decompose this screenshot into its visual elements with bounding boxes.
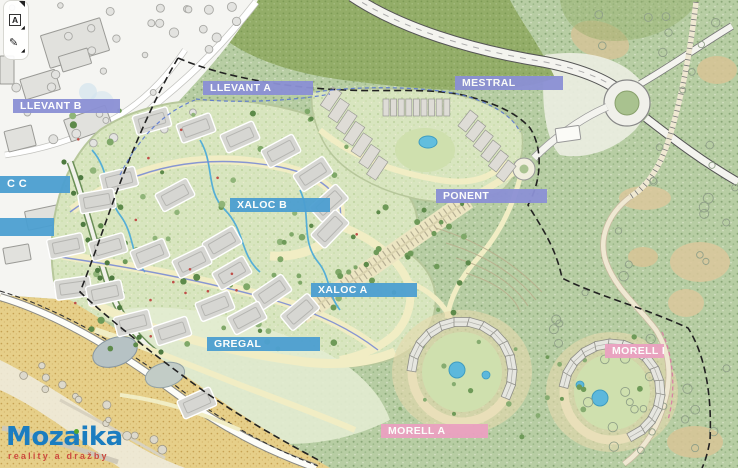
masterplan-image: A ◢ ✎ ◢ LLEVANT A LLEVANT B MESTRAL PONE… xyxy=(0,0,738,468)
zone-label-blank xyxy=(0,218,54,236)
zone-label-morell-b: MORELL B xyxy=(605,344,664,358)
zone-label-partial: C C xyxy=(0,176,70,193)
annotation-toolbar: A ◢ ✎ ◢ xyxy=(3,0,29,60)
text-annotation-icon[interactable]: A xyxy=(9,14,21,26)
logo-i-dot xyxy=(74,429,79,434)
brand-name: Mozaika xyxy=(6,425,156,450)
mestral-garden xyxy=(395,128,455,172)
resize-arrow-icon: ◢ xyxy=(21,26,25,31)
draw-annotation-icon[interactable]: ✎ xyxy=(9,37,18,49)
zone-label-morell-a: MORELL A xyxy=(381,424,488,438)
site-plan-map xyxy=(0,0,738,468)
zone-label-ponent: PONENT xyxy=(436,189,547,203)
zone-label-xaloc-a: XALOC A xyxy=(311,283,417,297)
zone-label-llevant-a: LLEVANT A xyxy=(203,81,313,95)
zone-label-mestral: MESTRAL xyxy=(455,76,563,90)
brand-logo: Mozaika reality a dražby xyxy=(6,425,156,461)
marker-icon[interactable] xyxy=(19,1,25,7)
mestral-pool xyxy=(419,136,437,148)
zone-label-llevant-b: LLEVANT B xyxy=(13,99,120,113)
resize-arrow-icon: ◢ xyxy=(21,49,25,54)
zone-label-xaloc-b: XALOC B xyxy=(230,198,330,212)
zone-label-gregal: GREGAL xyxy=(207,337,320,351)
brand-tagline: reality a dražby xyxy=(6,451,156,461)
